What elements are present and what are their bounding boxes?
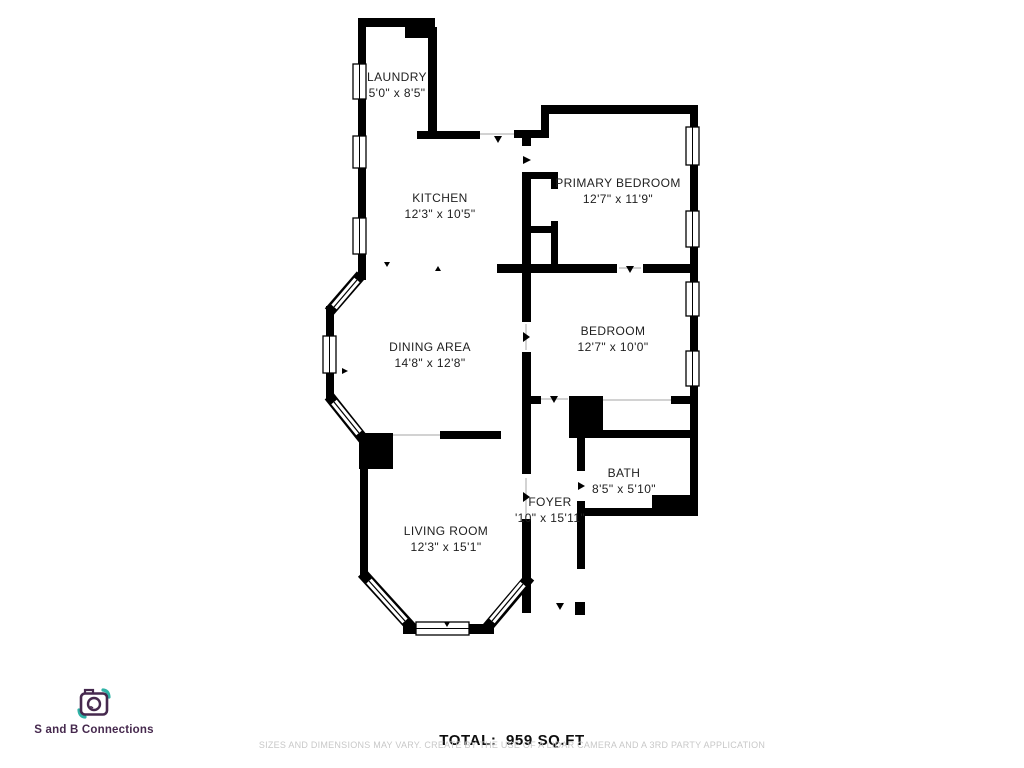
room-label-kitchen: KITCHEN 12'3" x 10'5" <box>404 190 475 222</box>
room-label-bath: BATH 8'5" x 5'10" <box>592 465 656 497</box>
area-summary: TOTAL: 959 SQ.FT FLOOR: 959 SQ.FT <box>437 696 586 768</box>
room-dims: 12'7" x 11'9" <box>555 191 681 207</box>
room-name: FOYER <box>515 494 585 510</box>
room-label-dining-area: DINING AREA 14'8" x 12'8" <box>389 339 471 371</box>
room-label-bedroom: BEDROOM 12'7" x 10'0" <box>577 323 648 355</box>
room-name: BEDROOM <box>577 323 648 339</box>
room-name: PRIMARY BEDROOM <box>555 175 681 191</box>
room-name: DINING AREA <box>389 339 471 355</box>
room-dims: 12'7" x 10'0" <box>577 339 648 355</box>
room-label-living-room: LIVING ROOM 12'3" x 15'1" <box>404 523 488 555</box>
room-name: BATH <box>592 465 656 481</box>
room-name: LIVING ROOM <box>404 523 488 539</box>
room-dims: 12'3" x 10'5" <box>404 206 475 222</box>
room-label-primary-bedroom: PRIMARY BEDROOM 12'7" x 11'9" <box>555 175 681 207</box>
room-dims: '10" x 15'11" <box>515 510 585 526</box>
disclaimer-text: SIZES AND DIMENSIONS MAY VARY. CREATE BY… <box>259 740 765 750</box>
brand-name: S and B Connections <box>24 724 164 736</box>
floorplan-drawing <box>0 0 1024 768</box>
room-dims: 14'8" x 12'8" <box>389 355 471 371</box>
room-label-foyer: FOYER '10" x 15'11" <box>515 494 585 526</box>
camera-icon <box>74 686 114 722</box>
room-dims: 5'0" x 8'5" <box>367 85 427 101</box>
room-dims: 8'5" x 5'10" <box>592 481 656 497</box>
room-name: LAUNDRY <box>367 69 427 85</box>
room-label-laundry: LAUNDRY 5'0" x 8'5" <box>367 69 427 101</box>
room-dims: 12'3" x 15'1" <box>404 539 488 555</box>
floorplan-page: LAUNDRY 5'0" x 8'5" KITCHEN 12'3" x 10'5… <box>0 0 1024 768</box>
room-name: KITCHEN <box>404 190 475 206</box>
brand-logo: S and B Connections <box>24 686 164 736</box>
